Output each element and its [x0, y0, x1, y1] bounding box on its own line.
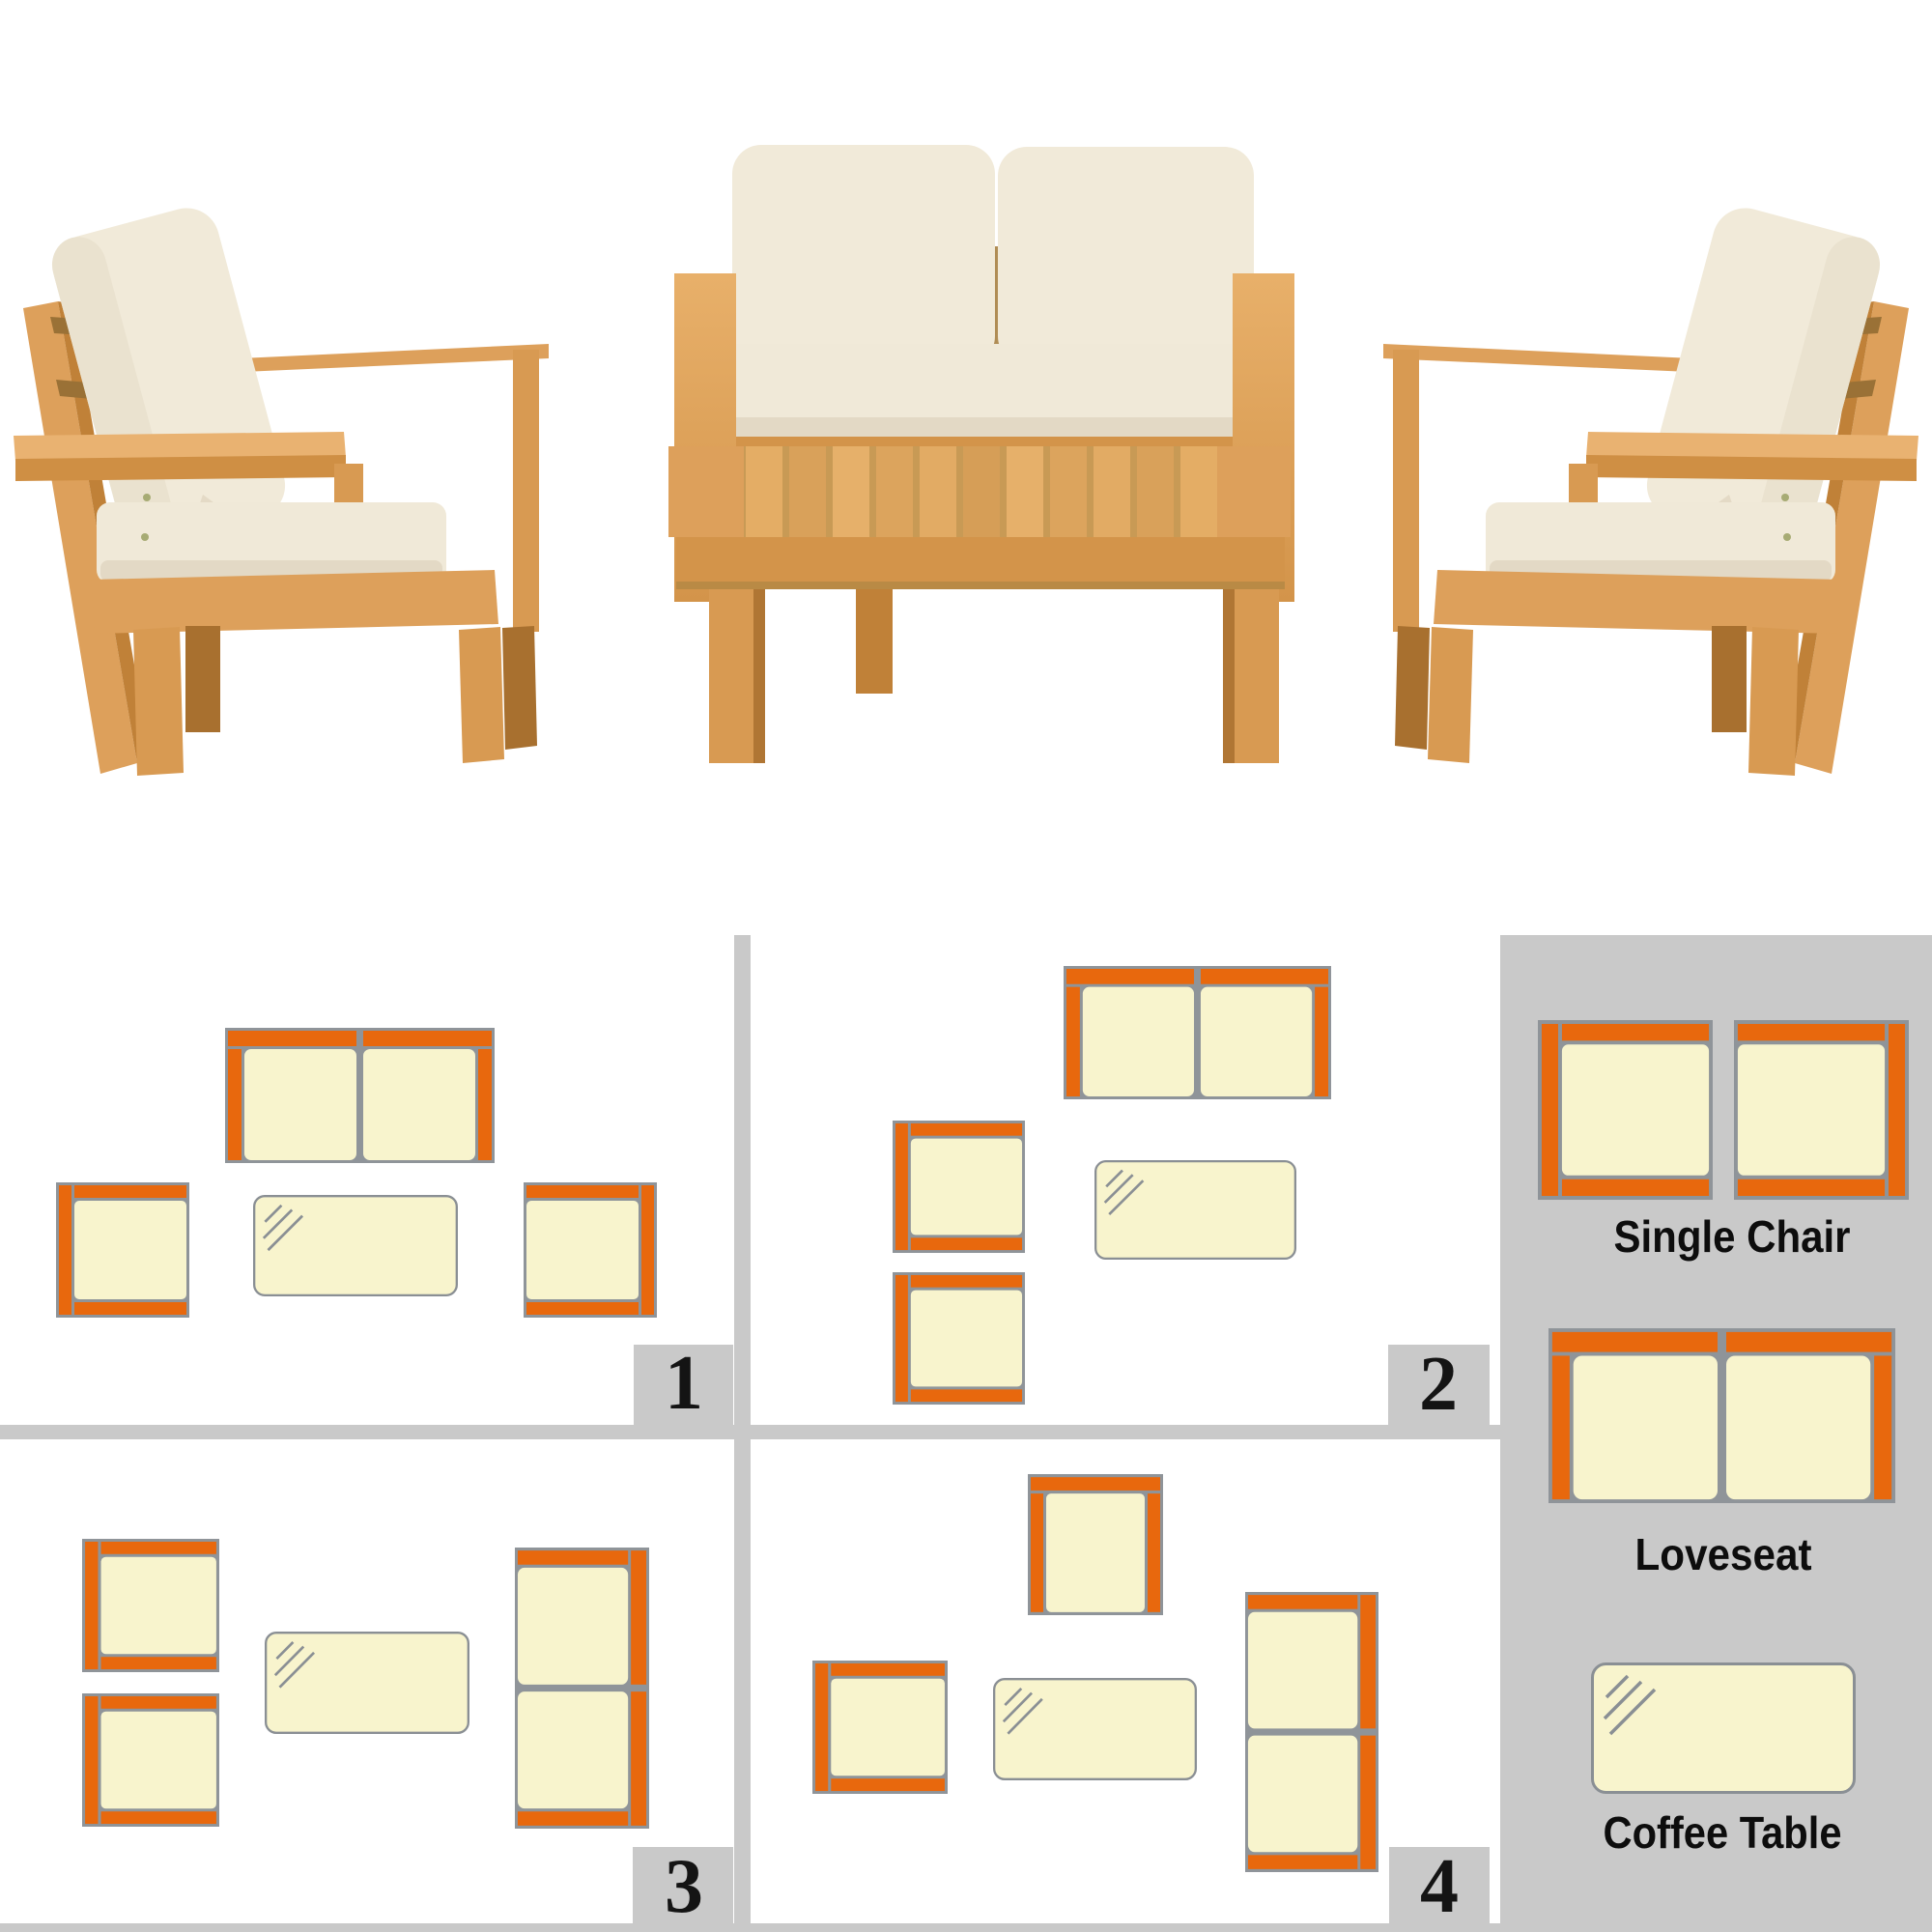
svg-text:1: 1: [665, 1341, 703, 1426]
svg-text:2: 2: [1419, 1342, 1458, 1427]
svg-text:Single Chair: Single Chair: [1614, 1211, 1851, 1262]
svg-text:Coffee Table: Coffee Table: [1604, 1807, 1842, 1858]
svg-text:3: 3: [665, 1844, 703, 1929]
svg-text:4: 4: [1420, 1844, 1459, 1929]
svg-text:Loveseat: Loveseat: [1635, 1529, 1812, 1579]
